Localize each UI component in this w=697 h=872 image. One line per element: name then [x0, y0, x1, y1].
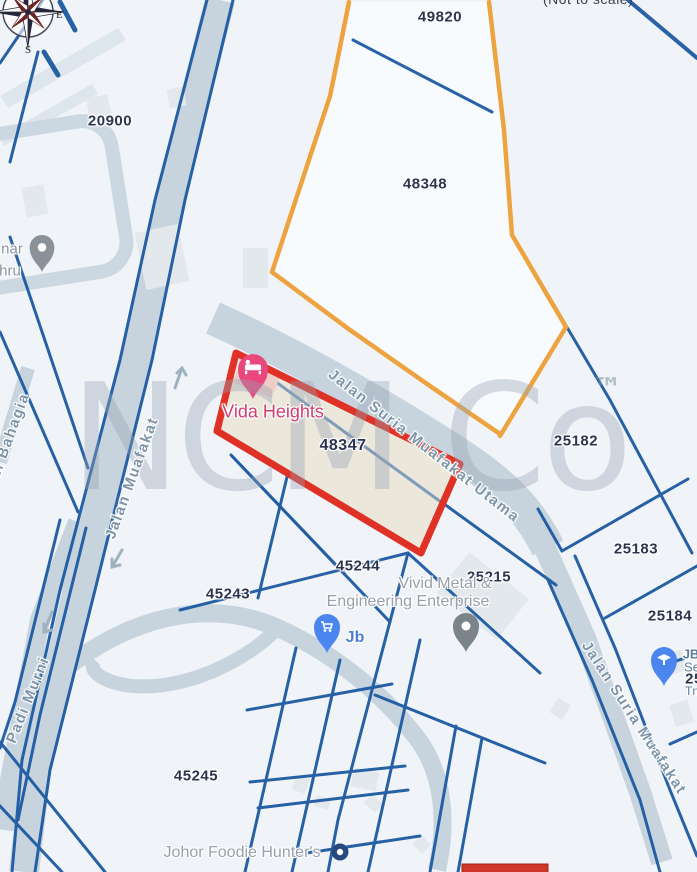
- survey-location-map: E S NCM Co ™ (Not to scale) 498202090048…: [0, 0, 697, 872]
- lot-label-45245: 45245: [174, 768, 218, 785]
- place-pin-icon[interactable]: [453, 613, 479, 652]
- lot-label-48347: 48347: [320, 437, 367, 455]
- poi-label-vivid-metal: Vivid Metal &: [398, 575, 491, 593]
- place-pin-left-icon[interactable]: [30, 235, 55, 272]
- poi-label-vida-heights: Vida Heights: [222, 402, 324, 423]
- not-to-scale-note: (Not to scale): [543, 0, 633, 7]
- compass-east-label: E: [56, 9, 63, 21]
- poi-label-johor-foodie-hunter-s: Johor Foodie Hunter's: [164, 844, 321, 862]
- watermark-tm: ™: [592, 372, 622, 407]
- poi-label-engineering-enterprise: Engineering Enterprise: [327, 593, 490, 611]
- lot-label-45243: 45243: [206, 586, 250, 603]
- poi-label-hru: hru: [0, 263, 21, 280]
- poi-label-jb: Jb: [346, 629, 365, 647]
- legend-swatch: [462, 864, 548, 872]
- jm-east-flank: [35, 0, 233, 872]
- school-pin-icon[interactable]: [651, 647, 677, 686]
- lot-label-45244: 45244: [336, 558, 380, 575]
- lot-label-25182: 25182: [554, 433, 598, 450]
- foodie-circle-pin[interactable]: [332, 844, 349, 861]
- lot-label-49820: 49820: [418, 9, 462, 26]
- lot-label-20900: 20900: [88, 113, 132, 130]
- poi-label-nar: nar: [1, 241, 23, 258]
- lot-label-25184: 25184: [648, 608, 692, 625]
- lot-label-48348: 48348: [403, 176, 447, 193]
- poi-label-tn: Tn: [685, 684, 697, 698]
- poi-label-se: Se: [684, 660, 697, 675]
- compass-south-label: S: [25, 44, 31, 56]
- lot-label-25183: 25183: [614, 541, 658, 558]
